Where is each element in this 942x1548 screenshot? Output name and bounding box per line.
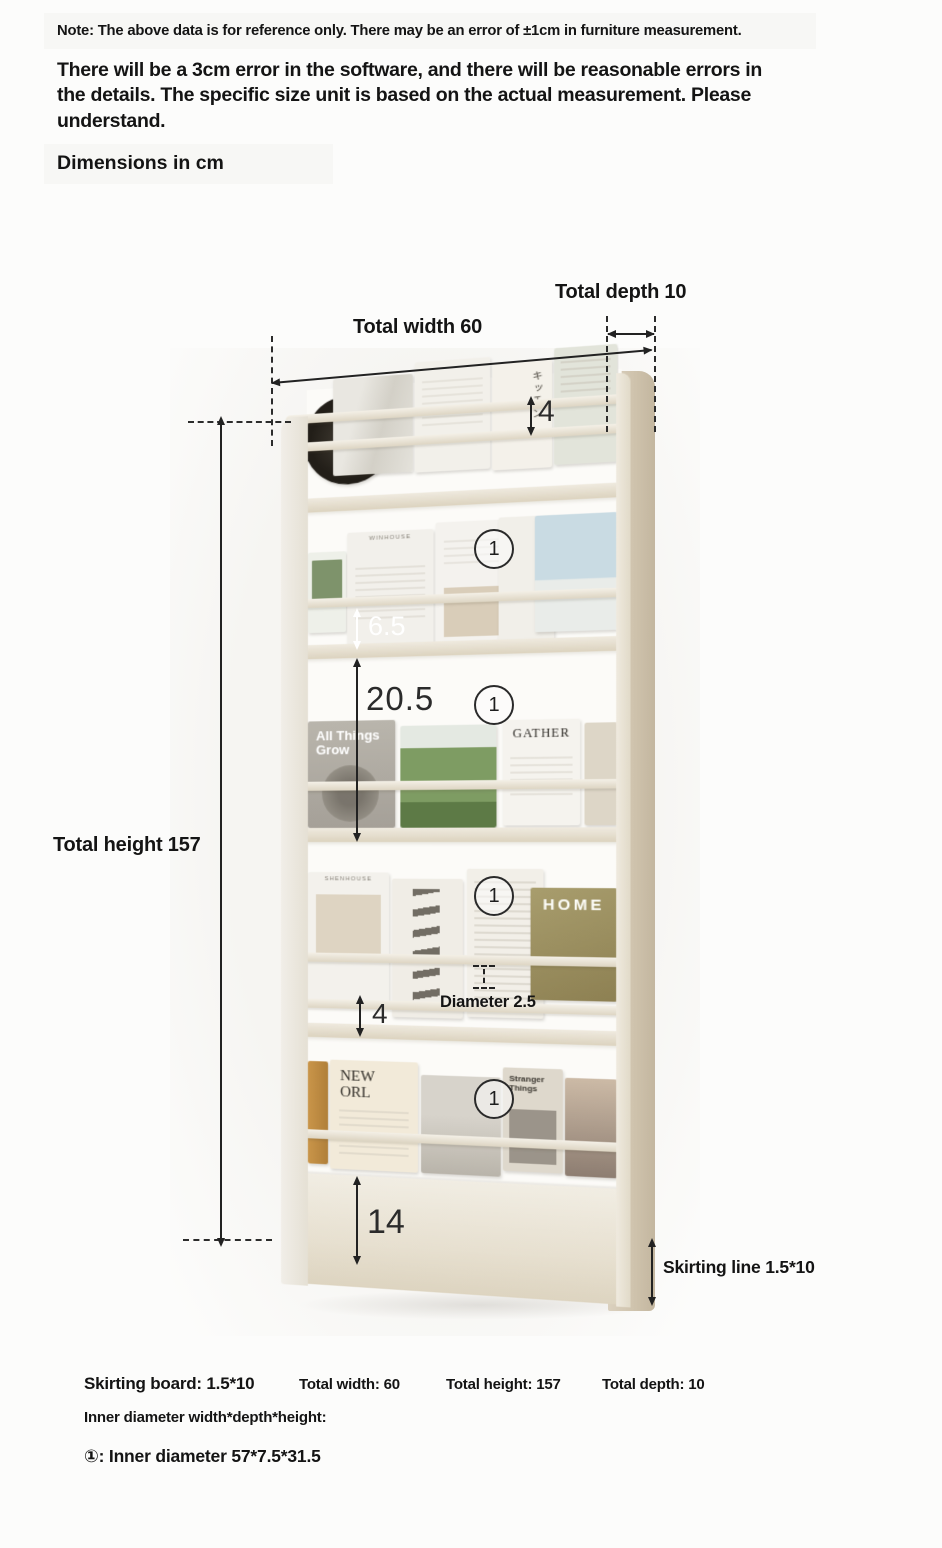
calligraphy-strokes [413,889,440,1002]
shelf-left-side-panel [281,416,308,1286]
cover-art [422,378,482,426]
magazine-cover-gather: GATHER [503,719,580,826]
magazine-cover [308,551,346,633]
diameter-label: Diameter 2.5 [440,993,536,1012]
tier2-inner-marker: 1 [474,529,514,569]
rail-diameter-mark [473,965,495,989]
magazine-cover-new-orl: NEW ORL [330,1060,418,1173]
opening-height-value: 20.5 [366,680,434,718]
footer-total-height: Total height: 157 [446,1376,561,1393]
total-depth-dimension-line [608,333,654,335]
magazine-cover-stranger-things: Stranger Things [503,1067,563,1173]
skirt-height-arrow [356,1184,358,1257]
brand-title: WINHOUSE [347,533,433,543]
cover-photo [312,559,342,600]
tier4-inner-marker: 1 [474,876,514,916]
rail-gap-arrow [356,616,358,642]
home-title: HOME [531,896,618,915]
top-rail-gap-arrow [530,404,532,428]
cover-photo [509,1109,556,1165]
opening-height-arrow [356,666,358,834]
page: Note: The above data is for reference on… [0,0,942,1548]
height-extension-line-bottom [183,1239,272,1241]
skirt-height-value: 14 [367,1203,405,1242]
brand-title: SHENHOUSE [308,876,389,883]
shelf-front-right-stile [616,372,630,1307]
magazine-cover-blue [535,512,617,632]
flower-photo [322,765,379,822]
total-height-dimension-line [220,424,222,1239]
footer-skirting-board: Skirting board: 1.5*10 [84,1374,254,1394]
magazine-cover-all-things-grow: All Things Grow [308,720,395,828]
magazine-cover-home: HOME [531,888,618,1002]
measurement-note: Note: The above data is for reference on… [57,23,742,39]
skirting-line-label: Skirting line 1.5*10 [663,1257,815,1278]
height-extension-line-top [188,421,291,423]
skirting-board-panel [286,1172,626,1305]
disclaimer-paragraph: There will be a 3cm error in the softwar… [57,58,779,134]
book-spine [308,1061,328,1164]
total-depth-label: Total depth 10 [555,281,686,304]
stranger-title: Stranger Things [509,1074,554,1094]
width-extension-line-left [271,336,273,446]
skirting-dimension-arrow [651,1246,653,1298]
mid-rail-gap-value: 4 [372,998,388,1030]
tier5-inner-marker: 1 [474,1079,514,1119]
total-width-label: Total width 60 [353,316,482,339]
top-rail-gap-value: 4 [538,395,555,429]
mid-rail-gap-arrow [359,1003,361,1029]
new-orl-title: NEW ORL [340,1068,375,1102]
cover-photo [316,894,381,955]
magazine-cover-sunset [565,1078,617,1179]
total-height-label: Total height 157 [53,834,201,857]
rail-gap-value: 6.5 [368,611,406,642]
magazine-cover [584,722,617,825]
footer-total-width: Total width: 60 [299,1376,400,1393]
dimensions-title: Dimensions in cm [57,152,224,175]
magazine-cover: SHENHOUSE [308,872,389,1002]
tier3-shelf-board [284,827,625,842]
magazine-rack: キッチン WINHOUSE All Things G [281,374,630,1309]
tier3-inner-marker: 1 [474,685,514,725]
cover-art [510,756,572,799]
magazine-cover [333,374,413,476]
cover-script [560,358,610,397]
gather-title: GATHER [503,725,580,742]
footer-inner-diameter-label: Inner diameter width*depth*height: [84,1409,326,1426]
cover-title: All Things Grow [316,728,380,757]
magazine-cover-landscape [400,724,496,827]
footer-total-depth: Total depth: 10 [602,1376,705,1393]
footer-inner-diameter-value: ①: Inner diameter 57*7.5*31.5 [84,1446,321,1467]
